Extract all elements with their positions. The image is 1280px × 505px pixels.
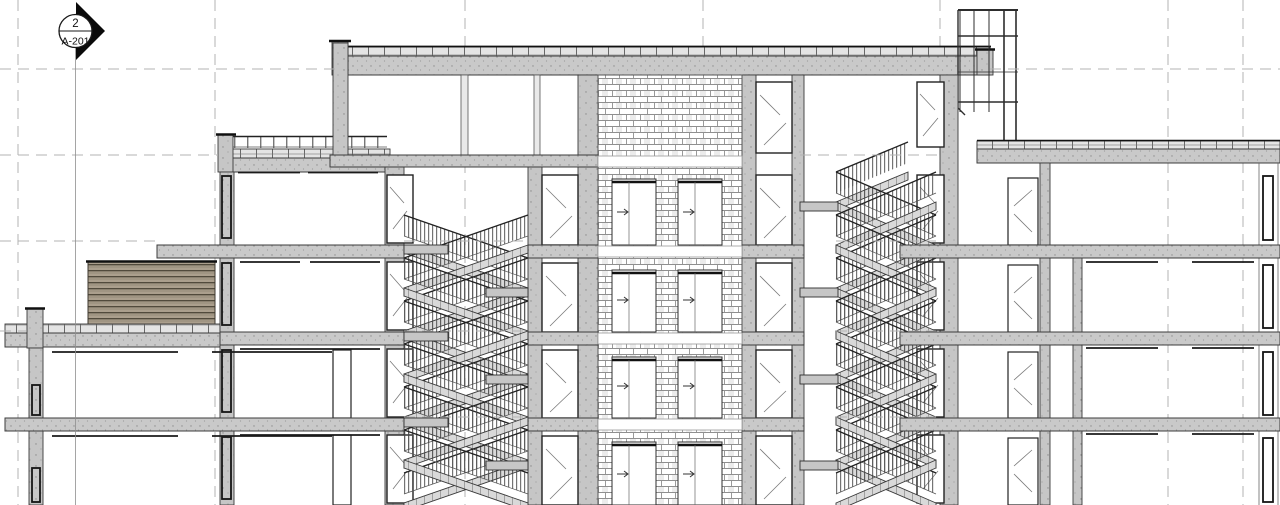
elevator-shaft	[598, 75, 742, 505]
louver-screen	[88, 262, 215, 333]
section-drawing-canvas: 2 A-201	[0, 0, 1280, 505]
building-section	[5, 10, 1280, 505]
low-left-wing-roof	[5, 262, 220, 349]
rooftop-frame-structure	[958, 10, 1018, 142]
right-wing-roof	[977, 141, 1280, 164]
section-detail-number: 2	[72, 18, 78, 30]
section-sheet-ref: A-201	[61, 36, 89, 48]
main-roof	[329, 41, 995, 75]
drawing-viewport: 2 A-201	[0, 0, 1280, 505]
right-stairwell	[836, 142, 936, 505]
glazed-door	[756, 82, 792, 505]
